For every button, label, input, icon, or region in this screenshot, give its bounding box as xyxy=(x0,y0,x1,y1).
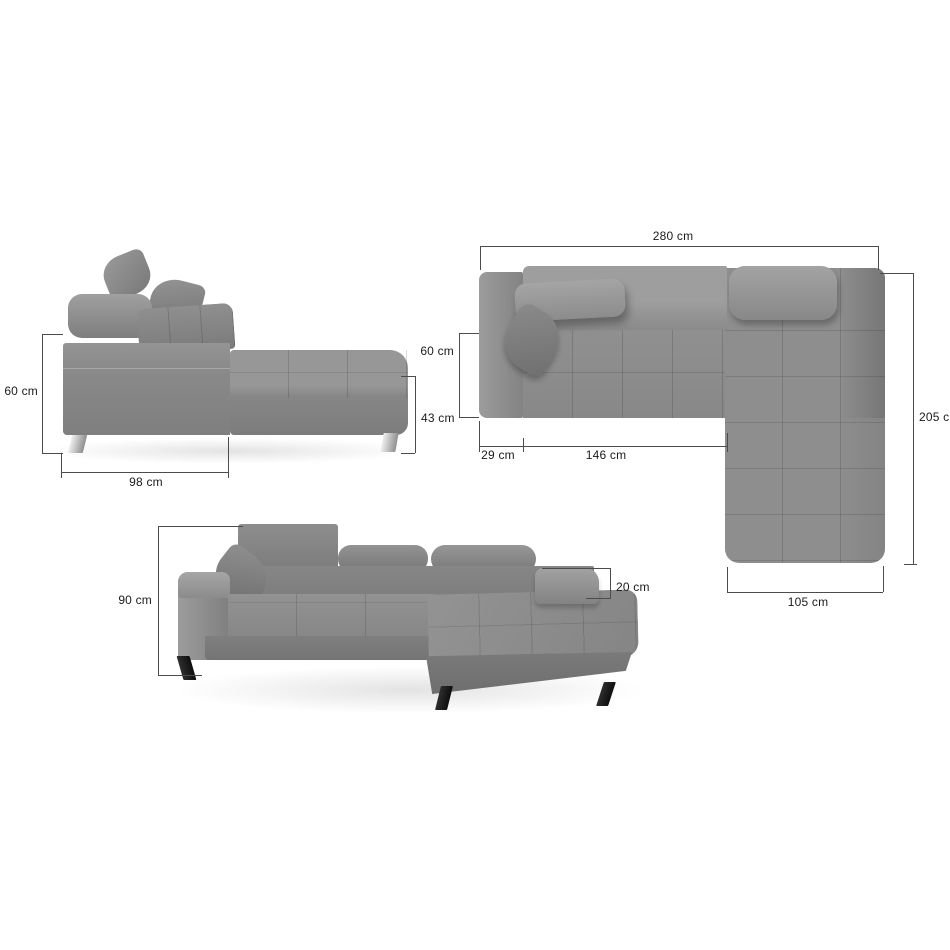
sofa-dimension-diagram: 60 cm 98 cm 43 cm xyxy=(0,0,950,950)
perspective-view: 90 cm 20 cm xyxy=(0,0,950,950)
black-leg-right xyxy=(596,682,616,706)
chaise-top xyxy=(427,589,639,662)
dimension-label: 20 cm xyxy=(616,580,650,594)
dimension-label: 90 cm xyxy=(96,593,152,607)
dimension-line xyxy=(158,526,159,675)
dimension-tick xyxy=(586,598,610,599)
dimension-tick xyxy=(158,675,202,676)
seat-front-rail xyxy=(205,636,437,660)
seat-cushions xyxy=(228,594,436,640)
armrest-top-cushion xyxy=(178,572,230,598)
dimension-tick xyxy=(158,526,243,527)
dimension-line xyxy=(610,568,611,599)
dimension-tick xyxy=(542,568,610,569)
